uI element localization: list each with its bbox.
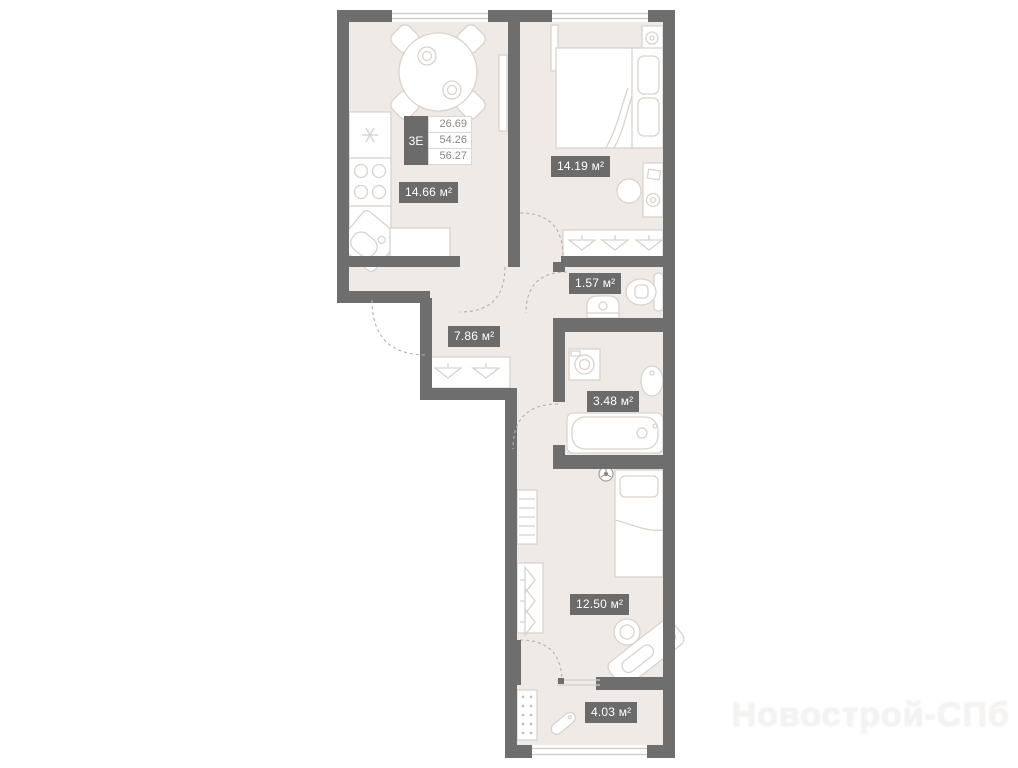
soccer-ball [599, 467, 613, 481]
washing-machine [569, 349, 600, 380]
nightstand-lamp [642, 26, 663, 49]
wardrobe [517, 563, 543, 635]
bathtub [567, 413, 663, 453]
floor-plan-drawing [0, 0, 1018, 768]
floor-plan-canvas: 14.66 м² 14.19 м² 1.57 м² 7.86 м² 3.48 м… [0, 0, 1018, 768]
room-area-label-bedroom-2: 12.50 м² [570, 594, 629, 615]
single-bed [615, 470, 663, 577]
unit-info-card: 3Е 26.69 54.26 56.27 [404, 116, 472, 165]
radiator [499, 55, 507, 131]
room-area-label-kitchen-living: 14.66 м² [399, 182, 458, 203]
stove [349, 158, 391, 206]
unit-type-badge: 3Е [404, 116, 428, 165]
hallway-wardrobe [424, 357, 510, 388]
wardrobe [563, 230, 663, 257]
watermark: Новострой-СПб [732, 696, 1010, 735]
fridge [349, 112, 391, 158]
unit-area-apartment: 54.26 [428, 132, 472, 149]
unit-area-total: 56.27 [428, 148, 472, 165]
double-bed [556, 48, 663, 148]
room-area-label-bedroom-1: 14.19 м² [551, 156, 610, 177]
shelving-unit [517, 490, 537, 544]
bathroom-sink [641, 366, 663, 396]
room-area-label-wc: 1.57 м² [569, 273, 621, 294]
room-area-label-entry-hall: 4.03 м² [585, 702, 637, 723]
entrance-door [532, 745, 647, 758]
unit-area-values: 26.69 54.26 56.27 [428, 116, 472, 165]
room-area-label-bathroom: 3.48 м² [587, 391, 639, 412]
room-area-label-hallway: 7.86 м² [448, 326, 500, 347]
wc-sink [587, 296, 619, 318]
shoe-cabinet [517, 690, 537, 740]
dining-table-with-chairs [388, 22, 488, 122]
unit-area-living: 26.69 [428, 116, 472, 133]
